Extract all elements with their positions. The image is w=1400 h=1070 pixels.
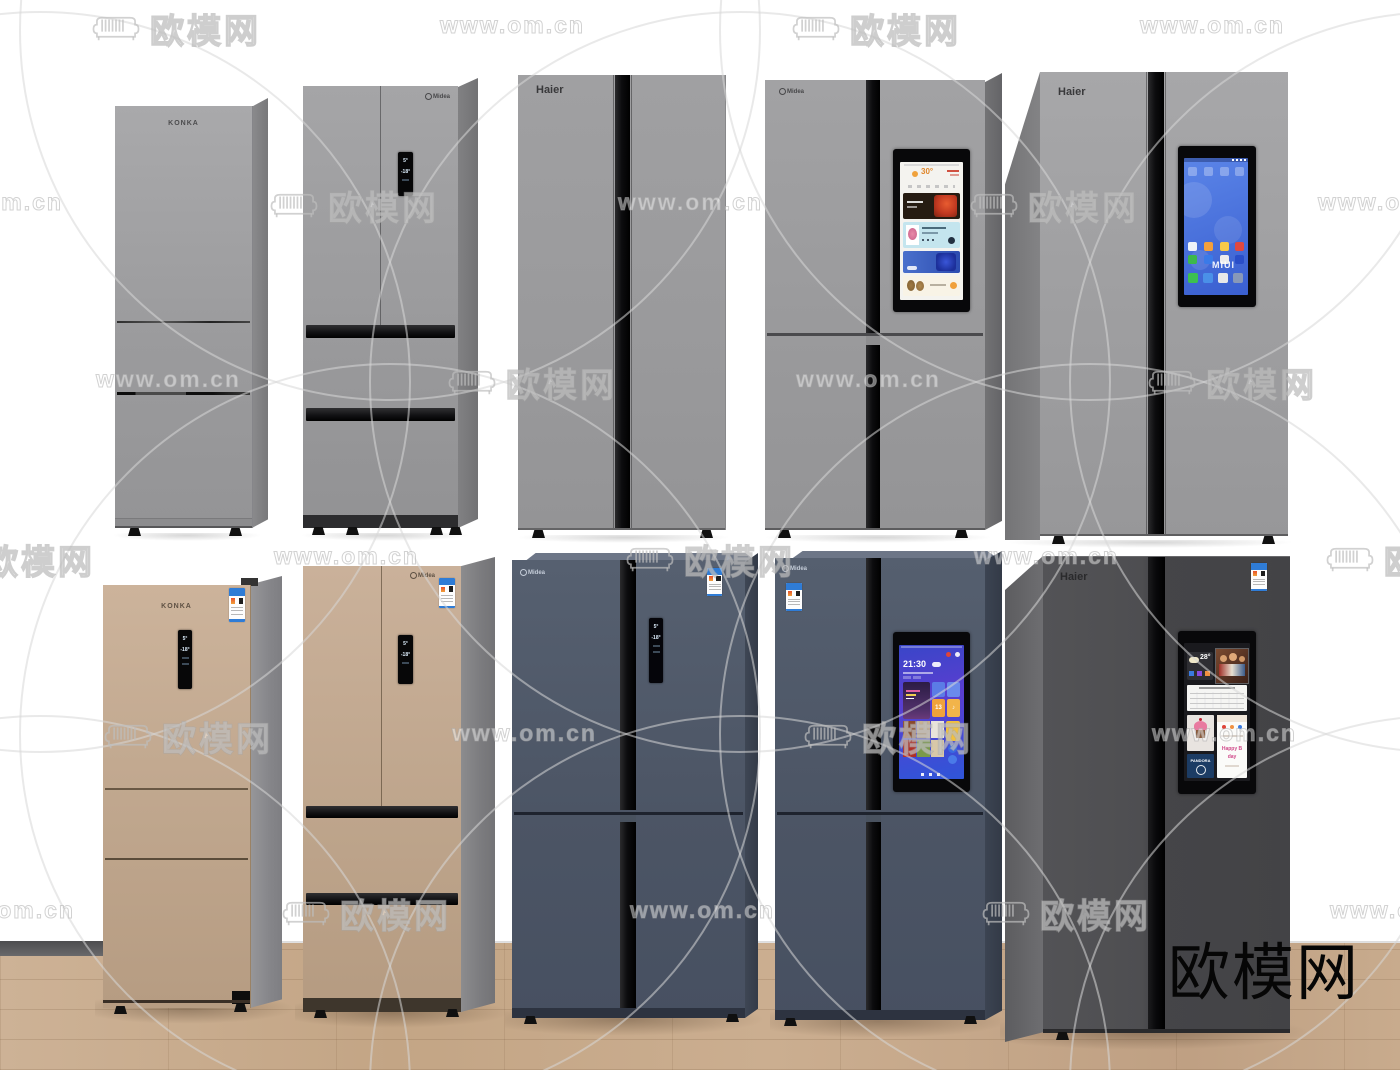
site-logo-text: 欧模网	[1168, 922, 1360, 1012]
watermark-site-text: 欧模网	[0, 535, 95, 584]
sun-icon	[912, 171, 918, 177]
alert-text	[947, 170, 959, 172]
app-icon	[1233, 273, 1243, 283]
pandora-label: PANDORA	[1187, 758, 1214, 763]
sofa-icon	[90, 14, 142, 44]
food-photo	[917, 721, 930, 738]
bottom-edge	[518, 528, 725, 530]
door-handle	[1148, 557, 1165, 1033]
door-gap	[767, 333, 983, 336]
brand-logo: Midea	[779, 88, 804, 95]
watermark-site-mark: 欧模网	[1324, 535, 1400, 584]
clock: 21:30	[903, 659, 926, 669]
drawer-handle-bar	[306, 325, 455, 338]
watermark-site-mark: 欧模网	[90, 4, 261, 53]
door-gap	[631, 75, 632, 530]
watermark-url-text: www.om.cn	[0, 189, 63, 216]
fridge-shadow	[112, 533, 262, 541]
brand-logo: Haier	[1058, 86, 1086, 98]
midea-ring-icon	[520, 569, 527, 576]
door-gap	[1165, 72, 1166, 536]
watermark-url-text: www.om.cn	[440, 12, 585, 39]
app-icon	[948, 744, 957, 753]
app-icon	[1235, 242, 1244, 251]
app-icon	[1189, 671, 1194, 676]
fridge-shadow	[516, 535, 731, 543]
brand-logo: KONKA	[161, 603, 192, 610]
app-icon	[1235, 255, 1244, 264]
food-photo	[903, 721, 916, 738]
brand-logo: Haier	[1060, 571, 1088, 583]
midea-ring-icon	[410, 572, 417, 579]
cupcake-photo	[1187, 715, 1214, 751]
fridge-shadow	[763, 535, 993, 543]
music-tile: ♪	[947, 699, 960, 717]
alert-text	[950, 174, 959, 176]
fridge-side-panel	[461, 557, 495, 1012]
fridge-front: Midea 21:30	[775, 558, 985, 1020]
drawer-handle-bar	[306, 408, 455, 421]
door-gap	[1146, 72, 1147, 536]
brand-logo: KONKA	[168, 120, 199, 127]
temperature-display: 5° -18°	[398, 635, 413, 684]
app-icon	[1204, 167, 1213, 176]
cloud-icon	[1189, 657, 1199, 663]
status-bar	[904, 164, 959, 166]
bottom-edge	[103, 1000, 250, 1003]
birthday-text: Happy B day	[1217, 745, 1247, 761]
fridge-front: Midea 5° -18°	[303, 86, 458, 528]
midea-ring-icon	[782, 565, 789, 572]
tile	[947, 682, 960, 697]
food-photo	[903, 740, 916, 757]
camera-icon	[955, 652, 960, 657]
kiwi-photo	[916, 281, 924, 291]
app-icon	[1188, 167, 1197, 176]
pagination-dots	[921, 773, 941, 776]
door-gap	[613, 75, 614, 530]
fridge-front: Midea 5° -18°	[303, 566, 461, 1012]
plinth	[775, 1010, 985, 1020]
app-icon	[948, 755, 957, 764]
play-button-icon	[948, 237, 955, 244]
energy-label	[786, 583, 802, 611]
player-controls	[922, 239, 936, 241]
product-showcase: KONKA Midea 5° -18°	[0, 0, 1400, 1070]
fruit-photo	[934, 195, 957, 217]
tile	[932, 682, 945, 697]
recipe-card	[903, 193, 960, 219]
watermark-site-text: 欧模网	[850, 4, 961, 53]
watermark-url-text: www.om.cn	[1140, 12, 1285, 39]
watermark-site-text: 欧模网	[150, 4, 261, 53]
app-icon	[1218, 273, 1228, 283]
temps-row	[908, 185, 955, 188]
birthday-card: Happy B day	[1217, 715, 1247, 778]
smart-screen-bezel: MIUI	[1178, 146, 1256, 307]
fridge-side-panel	[985, 73, 1002, 530]
energy-label	[229, 588, 245, 622]
sofa-icon	[790, 14, 842, 44]
app-icon	[1197, 671, 1202, 676]
app-icon	[1235, 167, 1244, 176]
drawer-gap	[105, 858, 248, 860]
fridge-front: KONKA 5° -18°	[103, 585, 251, 1008]
fridge-side-panel	[1005, 72, 1040, 540]
smart-screen-bezel: 21:30 13 ♪	[893, 632, 970, 792]
drawer-handle-bar	[306, 893, 458, 905]
brand-logo: Midea	[520, 569, 545, 576]
smart-screen-bezel: 28°	[1178, 631, 1256, 794]
door-handle	[866, 822, 881, 1020]
french-door-gap	[380, 86, 381, 325]
os-watermark: MIUI	[1212, 260, 1235, 270]
bottom-edge	[1040, 534, 1288, 536]
brand-logo: Midea	[425, 93, 450, 100]
watermark-site-mark: 欧模网	[790, 4, 961, 53]
temperature-display: 5° -18°	[178, 630, 192, 689]
door-handle	[615, 75, 630, 530]
drawer-handle-bar	[306, 806, 458, 818]
app-icon	[1220, 167, 1229, 176]
rose-photo	[936, 253, 956, 271]
door-handle	[866, 345, 880, 530]
brand-logo: Haier	[536, 84, 564, 96]
app-icon	[1205, 671, 1210, 676]
handle-break	[866, 336, 880, 345]
app-icon	[1204, 242, 1213, 251]
energy-label	[707, 568, 722, 596]
smart-screen-bezel: 30°	[893, 149, 970, 312]
drawer-gap	[117, 392, 250, 395]
album-art	[908, 228, 917, 240]
door-handle	[620, 560, 636, 810]
door-gap	[777, 812, 983, 815]
smart-screen: 30°	[900, 162, 963, 300]
watermark-site-mark: 欧模网	[0, 535, 95, 584]
food-photo	[917, 740, 930, 757]
phone-app-icon	[1188, 273, 1198, 283]
fridge-shadow	[1005, 540, 1295, 548]
calendar-grid	[1190, 692, 1244, 709]
play-button-icon	[1196, 765, 1206, 775]
concert-poster	[903, 682, 930, 719]
fridge-front: Haier	[1040, 72, 1288, 536]
pandora-widget: PANDORA	[1187, 754, 1214, 778]
bottom-edge	[765, 528, 985, 530]
tile	[946, 721, 960, 741]
record-icon	[946, 652, 951, 657]
brand-logo: Midea	[782, 565, 807, 572]
watermark-url-text: www.om.cn	[0, 897, 75, 924]
fridge-side-panel	[458, 78, 478, 528]
smart-screen: 28°	[1184, 643, 1250, 781]
fridge-front: Midea 30°	[765, 80, 985, 530]
music-card	[903, 222, 960, 248]
food-photo	[931, 721, 944, 738]
door-handle	[620, 822, 636, 1018]
midea-ring-icon	[425, 93, 432, 100]
door-handle	[866, 80, 880, 333]
door-gap	[514, 812, 743, 815]
food-photo	[931, 740, 944, 757]
french-door-gap	[381, 566, 382, 806]
temperature-display: 5° -18°	[398, 152, 413, 196]
watermark-site-text: 欧模网	[1384, 535, 1400, 584]
app-icon	[1220, 242, 1229, 251]
fridge-shadow	[300, 533, 470, 541]
door-gap	[117, 321, 250, 323]
temperature-display: 5° -18°	[649, 618, 663, 683]
app-icon	[1188, 242, 1197, 251]
cloud-icon	[932, 662, 941, 667]
door-handle	[866, 558, 881, 810]
bottom-edge	[1043, 1029, 1290, 1033]
watermark-url-text: www.om.cn	[1330, 897, 1400, 924]
fridge-side-panel	[985, 551, 1002, 1020]
banner-card	[903, 251, 960, 273]
date-row	[903, 672, 933, 674]
fridge-side-panel	[745, 553, 758, 1018]
status-icons	[1232, 159, 1246, 161]
fridge-side-panel	[250, 576, 282, 1008]
fridge-front: Midea 5° -18°	[512, 560, 745, 1018]
fridge-front: KONKA	[115, 106, 253, 528]
plinth	[303, 998, 461, 1012]
bottom-edge	[115, 526, 252, 528]
watermark-url-text: www.om.cn	[1318, 189, 1400, 216]
midea-ring-icon	[779, 88, 786, 95]
app-icon	[1188, 255, 1197, 264]
kiwi-photo	[907, 280, 915, 291]
plinth	[512, 1008, 745, 1018]
plinth	[303, 515, 458, 528]
energy-label	[439, 578, 455, 608]
calendar-widget	[1187, 685, 1247, 711]
energy-label	[1251, 563, 1267, 591]
fridge-side-panel	[1005, 556, 1043, 1042]
fridge-front: Haier	[518, 75, 726, 530]
status-bar	[901, 646, 962, 648]
brand-logo: Midea	[410, 572, 435, 579]
weather-temp: 30°	[921, 167, 933, 176]
weather-temp: 28°	[1200, 654, 1211, 661]
smart-screen: 21:30 13 ♪	[899, 645, 964, 779]
weather-widget: 28°	[1187, 652, 1213, 680]
smart-screen: MIUI	[1184, 158, 1248, 295]
food-card	[903, 276, 960, 296]
contacts-app-icon	[1203, 273, 1213, 283]
family-photo	[1215, 648, 1249, 684]
sofa-icon	[1324, 545, 1376, 575]
fridge-side-panel	[252, 98, 268, 528]
door-handle	[1148, 72, 1164, 536]
calendar-tile: 13	[932, 699, 945, 717]
door-gap	[105, 788, 248, 790]
